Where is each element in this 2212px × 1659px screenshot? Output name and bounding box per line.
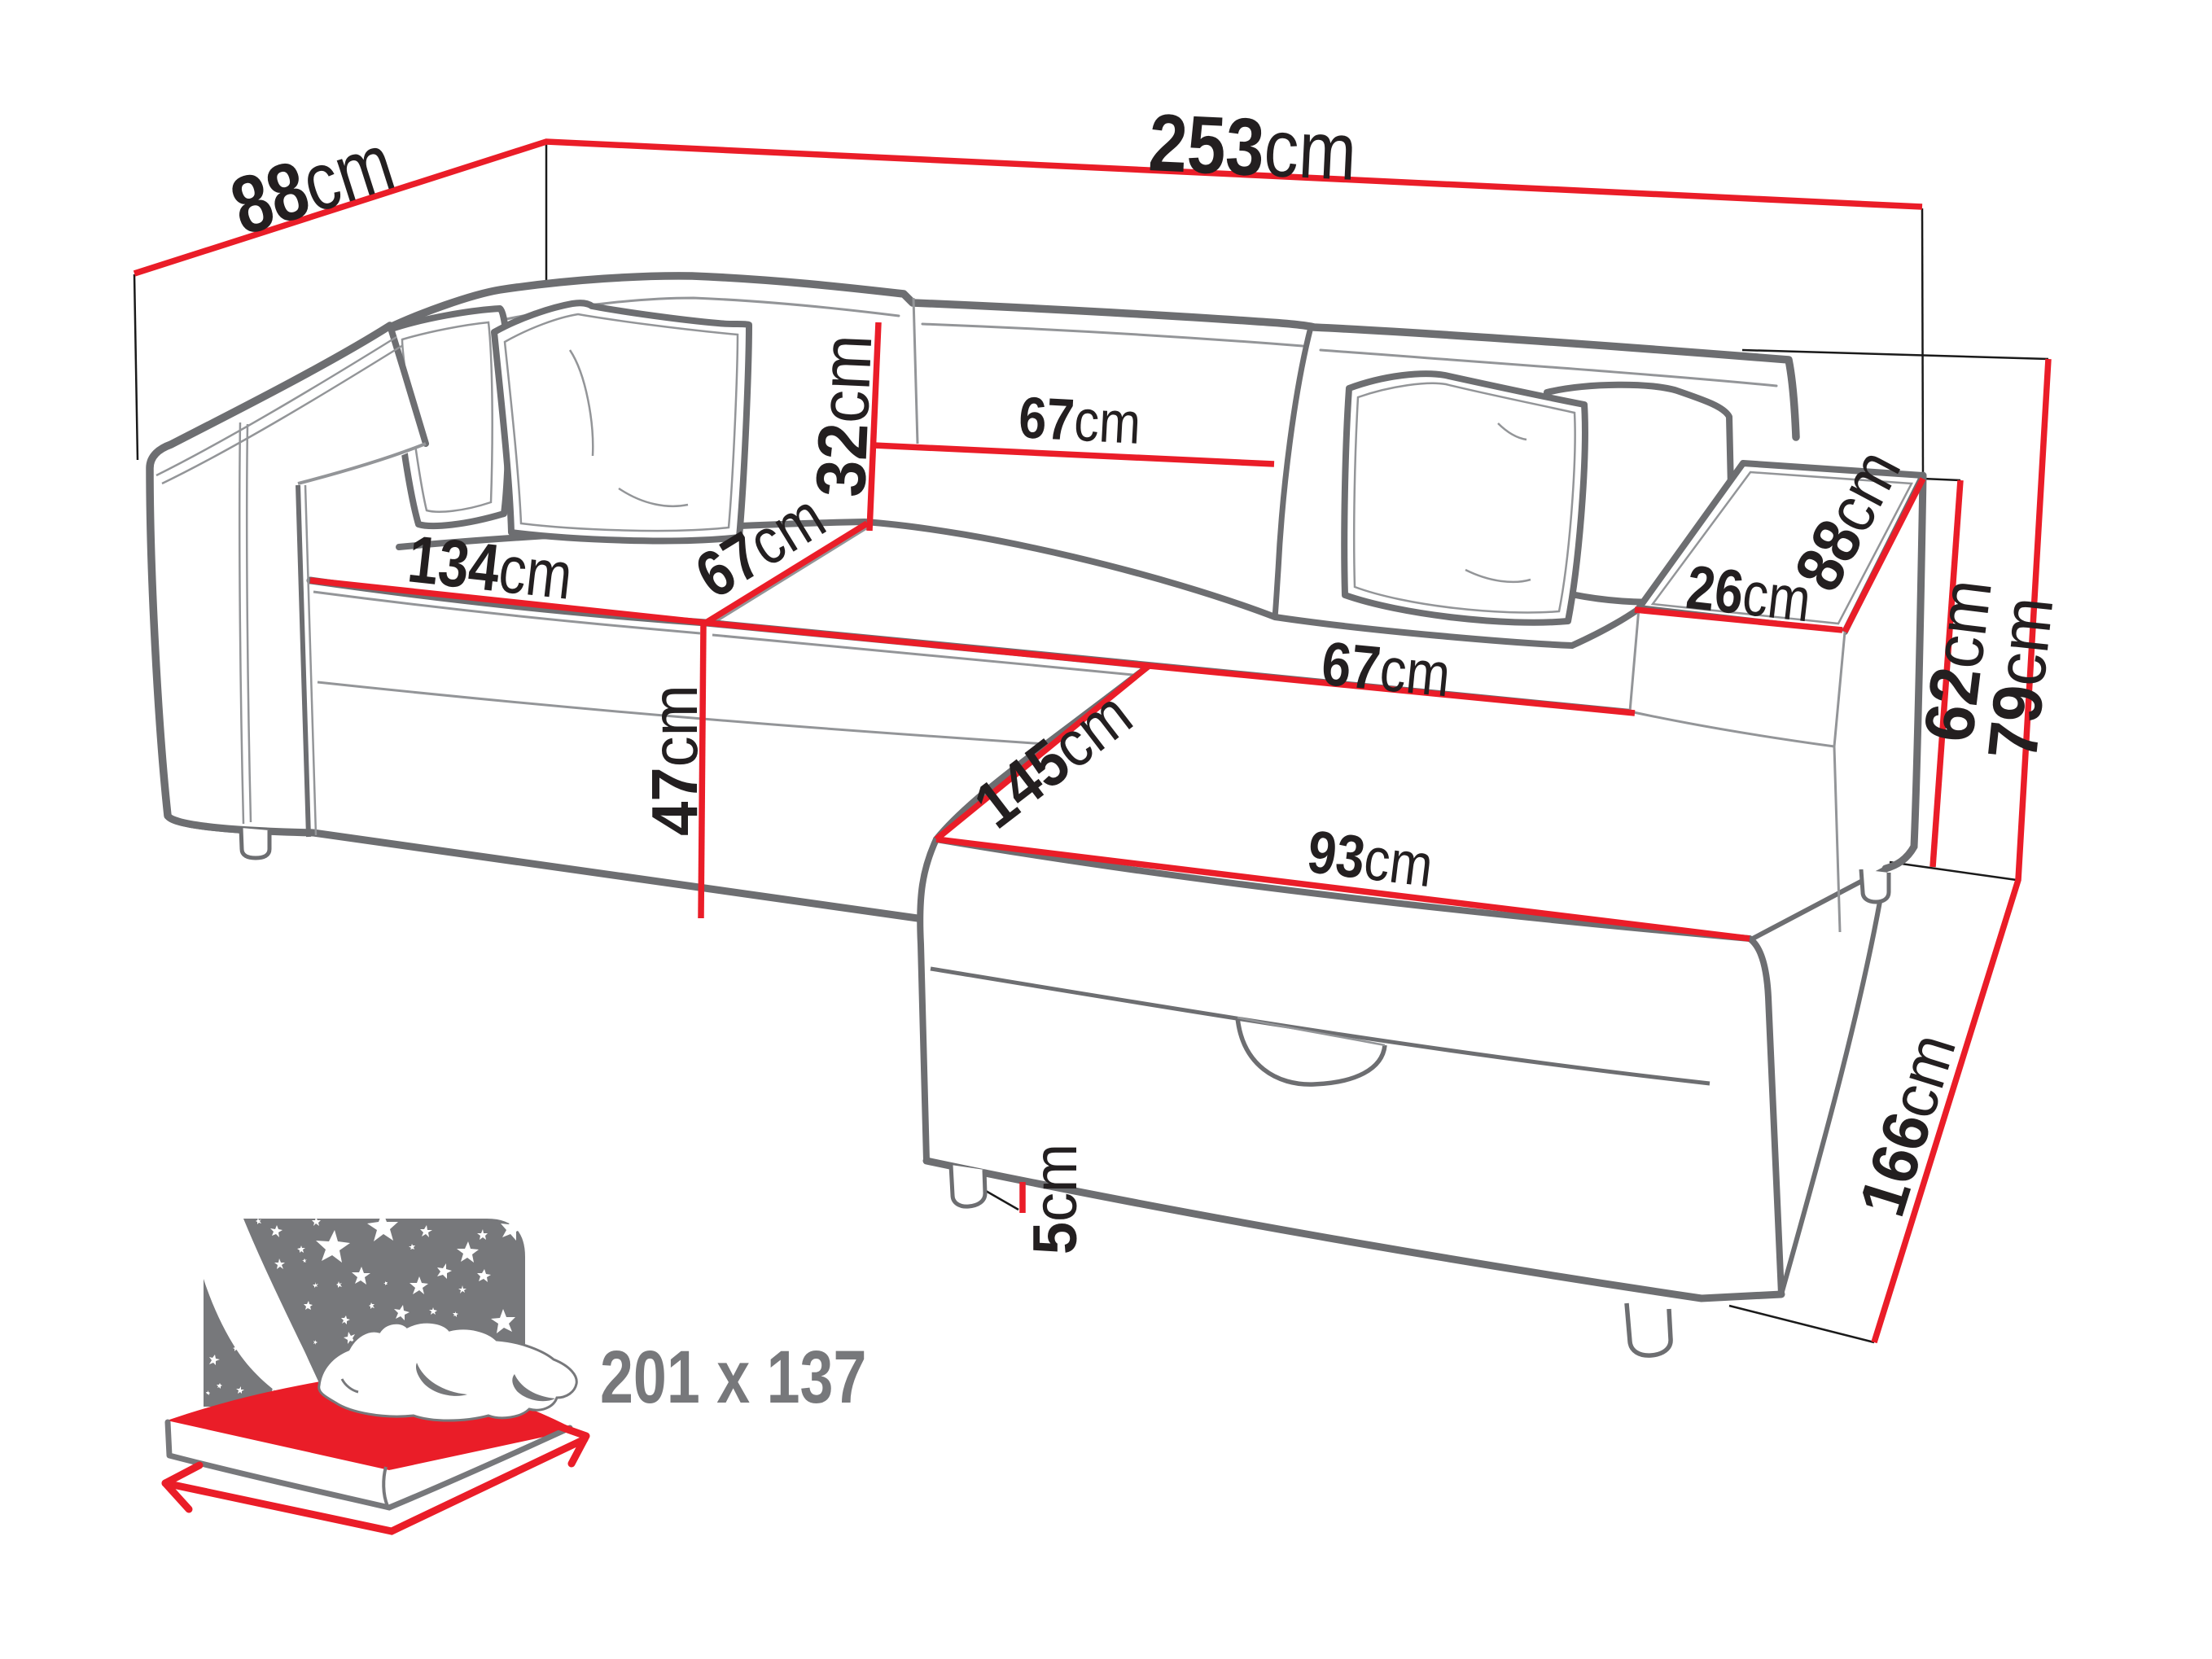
- svg-text:47cm: 47cm: [637, 685, 711, 836]
- svg-text:67cm: 67cm: [1319, 628, 1453, 710]
- svg-text:5cm: 5cm: [1020, 1144, 1089, 1254]
- svg-text:67cm: 67cm: [1017, 386, 1142, 457]
- svg-text:32cm: 32cm: [801, 333, 887, 499]
- svg-text:201 x 137: 201 x 137: [600, 1335, 866, 1419]
- svg-text:253cm: 253cm: [1147, 97, 1359, 198]
